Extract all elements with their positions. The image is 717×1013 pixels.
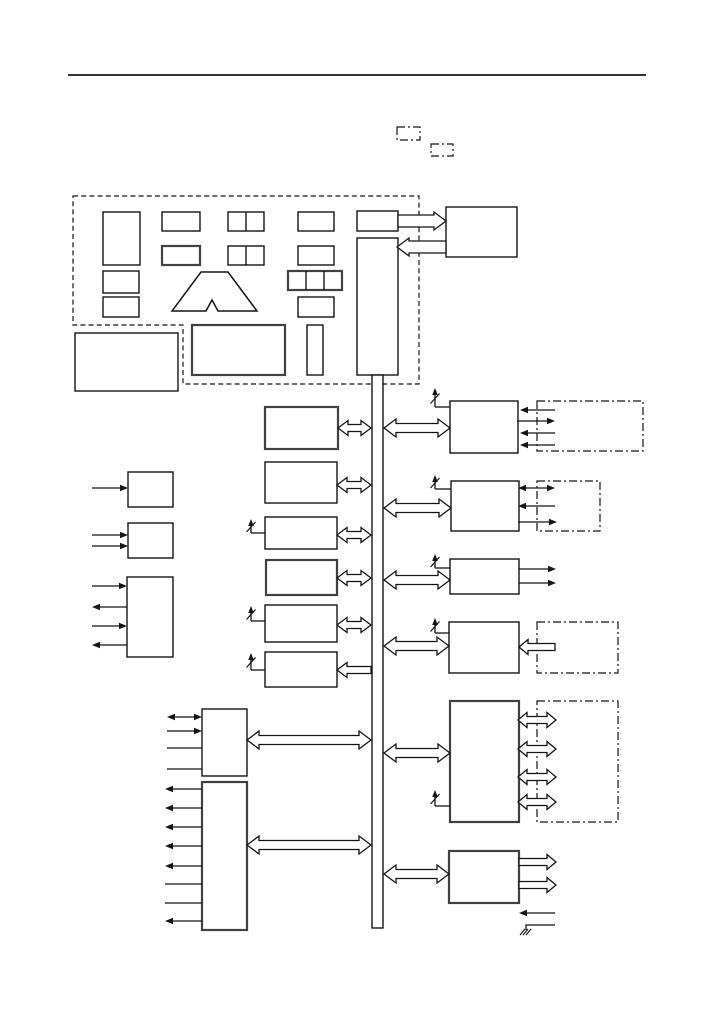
port-block-lower	[202, 782, 247, 930]
bus-arrow-center-5	[337, 618, 371, 633]
controller-right-block-1	[298, 212, 334, 231]
right1-io-1-head-left	[520, 407, 528, 413]
right6-in-arrow-head-left	[519, 910, 527, 916]
controller-tall-block	[103, 212, 140, 265]
input-arrow-b1-head-right	[120, 532, 128, 538]
io-arrow-c2-head-left	[92, 604, 100, 610]
bus-feeder-block	[357, 211, 398, 231]
standalone-lower-left-block	[75, 333, 178, 391]
bus-arrow-right-4	[384, 637, 449, 655]
bus-arrow-right-1	[384, 419, 450, 437]
controller-mid-block-1	[162, 212, 200, 231]
port-lower-link-1-head-left	[165, 786, 173, 792]
interrupt-center-6-head	[248, 653, 254, 660]
center-block-1	[265, 407, 338, 449]
port-lower-link-3-head-left	[165, 824, 173, 830]
right-block-6	[449, 851, 519, 903]
bus-arrow-right-2	[384, 499, 451, 517]
dashdot-box-top-2	[431, 144, 453, 156]
controller-right-block-2	[298, 246, 334, 265]
bus-arrow-center-6	[337, 663, 371, 678]
io-arrow-c4-head-left	[92, 642, 100, 648]
port-upper-link-1-head-right	[194, 714, 202, 720]
right1-io-3-head-left	[520, 430, 528, 436]
external-top-right-block	[446, 207, 517, 257]
dashdot-box-top-1	[397, 127, 420, 140]
vertical-bus	[372, 375, 383, 928]
right3-out-1-head-right	[548, 566, 556, 572]
bus-arrow-port-lower	[247, 836, 371, 854]
right5-io-arrow-2	[518, 742, 556, 757]
controller-lower-narrow-block	[307, 325, 323, 375]
logo-trapezoid-shape	[172, 272, 257, 311]
bus-arrow-port-upper	[247, 731, 371, 749]
controller-small-block-2	[103, 297, 139, 317]
document-page	[0, 0, 717, 1013]
right-block-5	[450, 701, 519, 822]
left-io-block	[127, 577, 173, 657]
io-arrow-c1-head-right	[119, 583, 127, 589]
port-upper-link-2-head-right	[194, 728, 202, 734]
right1-io-4-head-left	[520, 442, 528, 448]
port-lower-link-2-head-left	[165, 805, 173, 811]
right-block-4	[449, 622, 519, 673]
left-input-block-1	[128, 472, 173, 507]
port-lower-link-4-head-left	[165, 843, 173, 849]
bus-arrow-center-2	[337, 478, 371, 493]
center-block-5	[265, 605, 337, 642]
controller-mid-block-2	[162, 246, 200, 265]
right2-io-1-head-right	[547, 485, 555, 491]
port-upper-link-1-head-left	[167, 714, 175, 720]
controller-right-block-3	[298, 297, 334, 317]
right3-out-2-head-right	[548, 580, 556, 586]
input-arrow-a-head-right	[120, 485, 128, 491]
center-block-6	[265, 652, 337, 687]
center-block-3	[265, 517, 337, 549]
center-block-2	[265, 462, 337, 503]
io-arrow-c3-head-right	[119, 623, 127, 629]
right-block-2	[451, 481, 519, 531]
bus-arrow-right-6	[384, 865, 449, 883]
port-lower-link-5-head-left	[165, 863, 173, 869]
left-input-block-2	[128, 523, 173, 558]
port-block-upper	[202, 709, 247, 776]
arrow-feeder-to-external	[398, 212, 446, 230]
block-diagram	[0, 0, 717, 1013]
controller-lower-wide-block	[192, 325, 285, 375]
bus-arrow-right-5	[384, 744, 450, 762]
bus-arrow-center-3	[337, 528, 371, 543]
input-arrow-b2-head-right	[120, 543, 128, 549]
controller-small-block-1	[103, 271, 139, 293]
port-lower-link-8-head-left	[165, 918, 173, 924]
controller-split3-block	[288, 271, 342, 290]
right1-io-2-head-right	[547, 418, 555, 424]
bus-head-block	[357, 238, 398, 375]
right6-out-arrow-2	[519, 878, 556, 893]
interrupt-right-1-head	[432, 388, 438, 395]
bus-arrow-right-3	[384, 571, 450, 589]
arrow-external-to-bushead	[397, 238, 446, 256]
bus-arrow-center-4	[337, 571, 371, 586]
right-block-3	[450, 559, 519, 594]
right-block-1	[450, 401, 518, 453]
bus-arrow-center-1	[338, 421, 371, 436]
right6-out-arrow-1	[519, 855, 556, 870]
center-block-4	[266, 560, 337, 595]
right2-io-3-head-right	[549, 519, 557, 525]
dashdot-box-right-1	[537, 401, 643, 451]
